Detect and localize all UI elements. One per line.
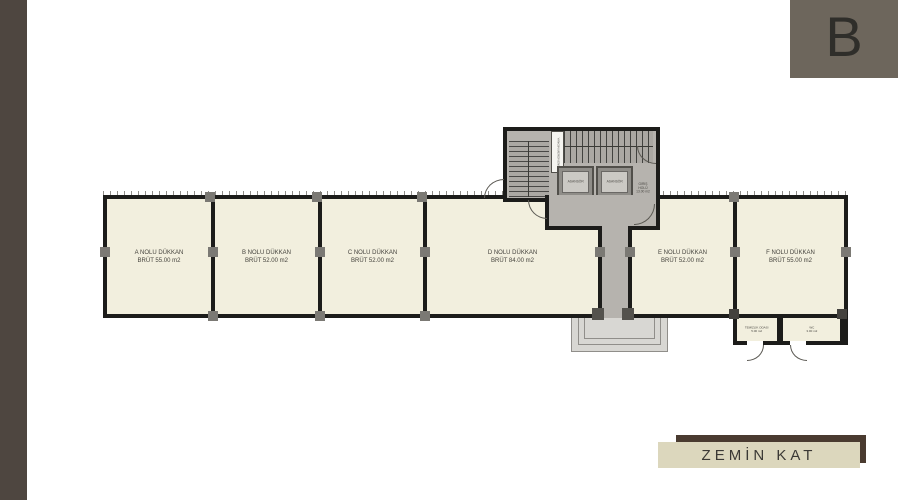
shop-f: F NOLU DÜKKAN BRÜT 55.00 m2 [737,199,844,314]
structural-column [837,309,847,319]
service-room-name: TEMİZLİK ODASI [745,326,769,330]
lobby-wall [549,226,602,230]
service-room-name: WC [806,326,817,330]
structural-column [208,247,218,257]
fire-stair [509,141,549,197]
shop-area: BRÜT 52.00 m2 [215,257,318,265]
structural-column [100,247,110,257]
hall-name: GİRİŞ HOLÜ [634,183,653,191]
shop-area: BRÜT 84.00 m2 [427,257,598,265]
entrance-hall-label: GİRİŞ HOLÜ 13.00 m2 [634,183,653,195]
block-b-badge: B [790,0,898,78]
structural-column [417,192,427,202]
structural-column [622,308,634,320]
entrance-step [584,318,655,339]
elevator-label: ASANSÖR [567,180,583,183]
elevator-2: ASANSÖR [596,166,633,198]
door-arc [790,345,807,361]
structural-column [841,247,851,257]
service-room-2: WC 3.00 m2 [783,318,840,341]
shop-name: C NOLU DÜKKAN [322,249,423,257]
block-letter: B [825,0,862,76]
lobby-wall [628,226,656,230]
structural-column [625,247,635,257]
shop-area: BRÜT 55.00 m2 [737,257,844,265]
floor-label-plate: ZEMİN KAT [658,435,866,469]
hall-area: 13.00 m2 [634,190,653,194]
structural-column [730,247,740,257]
elevator-car: ASANSÖR [562,171,589,193]
shop-b: B NOLU DÜKKAN BRÜT 52.00 m2 [215,199,318,314]
structural-column [420,247,430,257]
service-room-1: TEMİZLİK ODASI 5.00 m2 [737,318,777,341]
shop-area: BRÜT 52.00 m2 [322,257,423,265]
service-room-area: 3.00 m2 [806,330,817,334]
structural-column [420,311,430,321]
elevator-car: ASANSÖR [601,171,628,193]
shop-name: B NOLU DÜKKAN [215,249,318,257]
entrance-steps [571,318,668,352]
elevator-1: ASANSÖR [557,166,594,198]
shop-area: BRÜT 55.00 m2 [107,257,211,265]
plate-face: ZEMİN KAT [658,442,860,468]
structural-column [205,192,215,202]
fire-stair-label: YANGIN MERDİVENİ [556,138,559,167]
floor-label: ZEMİN KAT [702,447,817,464]
service-room-area: 5.00 m2 [745,330,769,334]
left-border-band [0,0,27,500]
door-arc [747,345,764,361]
structural-column [312,192,322,202]
structural-column [592,308,604,320]
structural-column [729,309,739,319]
shop-a: A NOLU DÜKKAN BRÜT 55.00 m2 [107,199,211,314]
shop-name: D NOLU DÜKKAN [427,249,598,257]
structural-column [315,247,325,257]
door-arc [484,179,504,198]
shop-c: C NOLU DÜKKAN BRÜT 52.00 m2 [322,199,423,314]
structural-column [315,311,325,321]
shop-name: E NOLU DÜKKAN [632,249,733,257]
structural-column [595,247,605,257]
shop-area: BRÜT 52.00 m2 [632,257,733,265]
structural-column [729,192,739,202]
shop-name: F NOLU DÜKKAN [737,249,844,257]
elevator-label: ASANSÖR [606,180,622,183]
structural-column [208,311,218,321]
shop-name: A NOLU DÜKKAN [107,249,211,257]
